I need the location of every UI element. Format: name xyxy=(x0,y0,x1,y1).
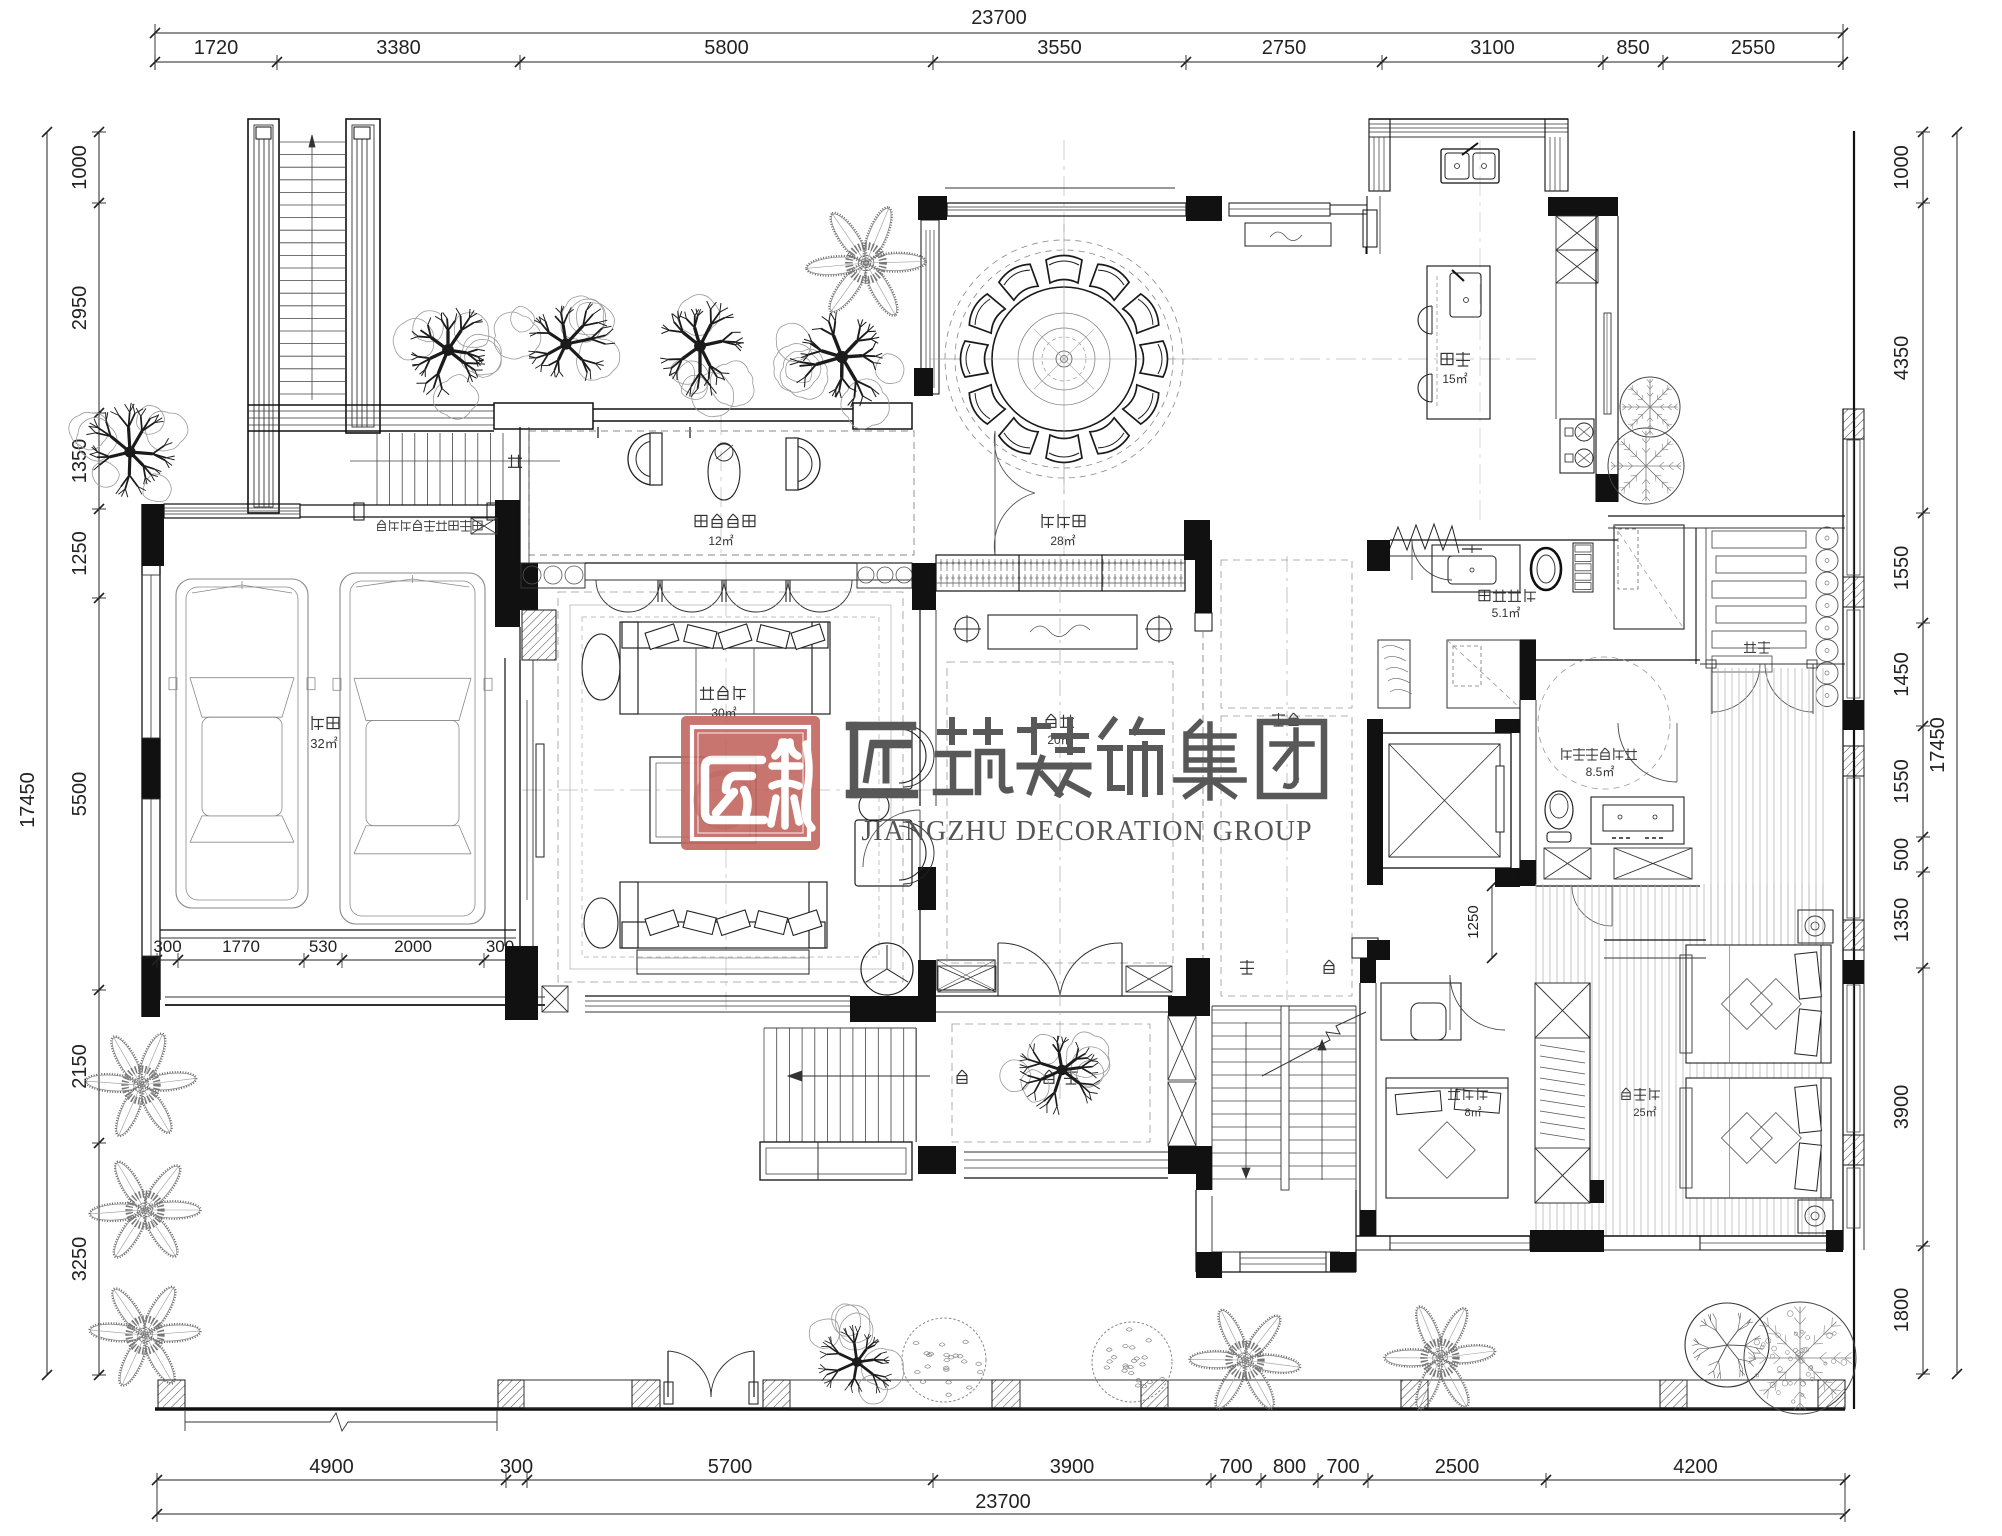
svg-text:5500: 5500 xyxy=(69,772,91,817)
svg-text:2000: 2000 xyxy=(394,937,432,956)
svg-text:17450: 17450 xyxy=(17,772,39,828)
svg-text:3900: 3900 xyxy=(1891,1085,1913,1130)
svg-text:3900: 3900 xyxy=(1050,1456,1095,1478)
svg-text:500: 500 xyxy=(1891,838,1913,871)
svg-text:1720: 1720 xyxy=(194,37,239,59)
svg-text:25㎡: 25㎡ xyxy=(1633,1106,1656,1119)
svg-text:1550: 1550 xyxy=(1891,759,1913,804)
svg-text:28㎡: 28㎡ xyxy=(1050,534,1075,548)
svg-text:530: 530 xyxy=(309,937,337,956)
svg-text:4350: 4350 xyxy=(1891,336,1913,381)
svg-text:1550: 1550 xyxy=(1891,546,1913,591)
svg-text:4900: 4900 xyxy=(309,1456,354,1478)
svg-text:32㎡: 32㎡ xyxy=(310,736,337,751)
svg-text:5800: 5800 xyxy=(704,37,749,59)
svg-text:300: 300 xyxy=(500,1456,533,1478)
svg-text:JIANGZHU DECORATION GROUP: JIANGZHU DECORATION GROUP xyxy=(861,816,1312,847)
svg-text:8㎡: 8㎡ xyxy=(1464,1106,1481,1119)
svg-text:5700: 5700 xyxy=(708,1456,753,1478)
svg-text:700: 700 xyxy=(1219,1456,1252,1478)
svg-text:4200: 4200 xyxy=(1673,1456,1718,1478)
svg-text:8.5㎡: 8.5㎡ xyxy=(1586,765,1615,779)
svg-text:1250: 1250 xyxy=(1465,905,1482,938)
svg-text:2550: 2550 xyxy=(1731,37,1776,59)
svg-text:3550: 3550 xyxy=(1037,37,1082,59)
svg-text:2950: 2950 xyxy=(69,286,91,331)
svg-text:3250: 3250 xyxy=(69,1237,91,1282)
svg-text:15㎡: 15㎡ xyxy=(1442,372,1467,386)
svg-text:2150: 2150 xyxy=(69,1044,91,1089)
svg-text:12㎡: 12㎡ xyxy=(708,534,733,548)
svg-text:1450: 1450 xyxy=(1891,652,1913,697)
svg-text:1770: 1770 xyxy=(222,937,260,956)
svg-text:23700: 23700 xyxy=(971,7,1027,29)
svg-text:1250: 1250 xyxy=(69,531,91,576)
svg-text:23700: 23700 xyxy=(975,1491,1031,1513)
svg-text:3380: 3380 xyxy=(376,37,421,59)
svg-text:850: 850 xyxy=(1616,37,1649,59)
svg-text:1000: 1000 xyxy=(1891,145,1913,190)
svg-text:1800: 1800 xyxy=(1891,1288,1913,1333)
svg-text:17450: 17450 xyxy=(1927,717,1949,773)
svg-text:3100: 3100 xyxy=(1470,37,1515,59)
svg-text:700: 700 xyxy=(1326,1456,1359,1478)
svg-text:2750: 2750 xyxy=(1262,37,1307,59)
svg-text:2500: 2500 xyxy=(1435,1456,1480,1478)
svg-text:800: 800 xyxy=(1273,1456,1306,1478)
svg-text:300: 300 xyxy=(153,937,181,956)
svg-text:5.1㎡: 5.1㎡ xyxy=(1492,606,1521,620)
svg-text:1350: 1350 xyxy=(1891,898,1913,943)
svg-text:1000: 1000 xyxy=(69,145,91,190)
